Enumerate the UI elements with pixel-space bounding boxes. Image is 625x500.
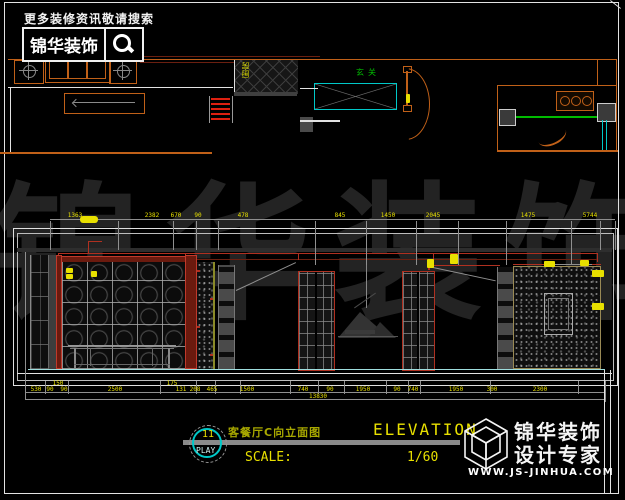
scale-label: SCALE: [245,450,292,465]
dimension-label: 300 [487,386,498,393]
cube-logo [464,418,508,470]
stone-strip [197,262,213,369]
drawing-title-cn: 客餐厅C向立面图 [228,424,321,440]
dimension-label: 90 [46,386,53,393]
material-tag [450,254,458,264]
brand-footer-website: WWW.JS-JINHUA.COM [468,467,614,478]
dimension-label: 1475 [521,212,535,219]
dimension-label: 90 [393,386,400,393]
material-tag [91,271,97,277]
brand-footer: 锦华装饰 设计专家 WWW.JS-JINHUA.COM [460,410,618,490]
material-tag [592,270,604,277]
dimension-label: 1450 [381,212,395,219]
brand-name: 锦华装饰 [24,29,104,60]
bubble-number: 11 [202,429,214,440]
search-hint-text: 更多装修资讯敬请搜索 [24,10,154,27]
bench-elevation [68,345,176,369]
dimension-label: 670 [171,212,182,219]
dimension-label: 2300 [533,386,547,393]
magnifier-icon [112,33,136,57]
floor-line [28,369,605,370]
dimension-label: 90 [326,386,333,393]
material-tag [66,268,73,273]
total-dimension-label: 13830 [309,393,327,400]
dimension-label: 740 [408,386,419,393]
red-post [185,255,197,369]
dimension-label: 478 [238,212,249,219]
material-tag [580,260,589,266]
dimension-label: 5744 [583,212,597,219]
dimension-label: 2500 [108,386,122,393]
dimension-label: 845 [335,212,346,219]
column-elevation [218,265,235,369]
side-wall-panel [30,255,49,369]
material-tag [544,261,555,267]
scale-value: 1/60 [407,450,438,465]
dimension-label: 90 [60,386,67,393]
brand-search-box: 锦华装饰 [22,27,144,62]
dimension-label: 1950 [449,386,463,393]
plant-decoration [333,230,402,369]
dimension-label: 465 [207,386,218,393]
dimension-label: 1950 [356,386,370,393]
bubble-label: PLAY [196,446,215,455]
material-tag [80,216,98,223]
dimension-label: 131 [176,386,187,393]
material-tag [427,259,434,268]
carved-screen-panel [402,271,435,371]
dimension-label: 740 [298,386,309,393]
cad-viewer-sheet: 锦华装饰 更多装修资讯敬请搜索 锦华装饰 [0,0,625,500]
dimension-label: 530 [31,386,42,393]
material-tag [66,274,73,279]
material-tag [592,303,604,310]
brand-footer-tagline: 设计专家 [514,439,602,468]
dimension-label: 90 [194,212,201,219]
stone-wall-panel [513,266,601,369]
dimension-label: 208 [190,386,201,393]
dimension-label: 2382 [145,212,159,219]
dimension-label: 2045 [426,212,440,219]
carved-screen-panel [298,271,335,371]
dimension-label: 1500 [240,386,254,393]
drawing-number-bubble: 11 PLAY [189,425,227,463]
